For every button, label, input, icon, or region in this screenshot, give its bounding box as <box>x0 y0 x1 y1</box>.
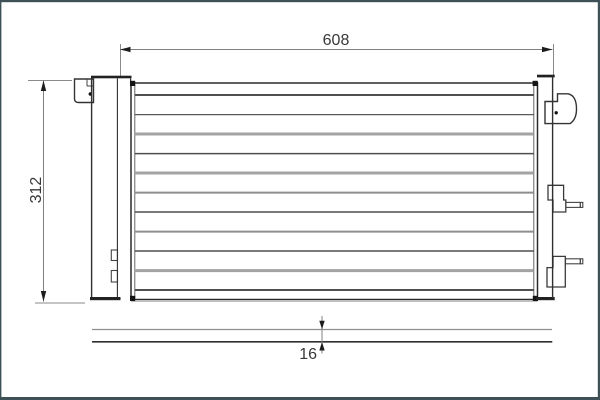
mounting-bracket-left <box>75 79 94 103</box>
tank-right-bottom-cap <box>536 297 555 300</box>
bracket-right-pin-dot <box>555 111 558 114</box>
drawing-frame: 608 312 <box>0 0 600 400</box>
bracket-left-outline <box>75 79 94 103</box>
height-dimension-label: 312 <box>28 177 45 204</box>
drier-tab-lower <box>111 271 117 283</box>
core-corner-tab-bottom-left <box>130 296 135 301</box>
width-dimension-label: 608 <box>323 32 350 49</box>
technical-drawing-canvas: 608 312 <box>0 0 600 400</box>
drier-bottom-cap <box>90 297 121 300</box>
frame-border-top <box>0 0 600 2</box>
drier-top-cap <box>91 76 132 79</box>
depth-dimension-label: 16 <box>299 346 317 363</box>
drawing-background <box>0 0 600 400</box>
drier-tab-upper <box>111 250 117 261</box>
frame-border-left <box>0 0 1 400</box>
core-corner-tab-top-left <box>130 81 135 86</box>
core-corner-tab-top-right <box>533 81 538 86</box>
